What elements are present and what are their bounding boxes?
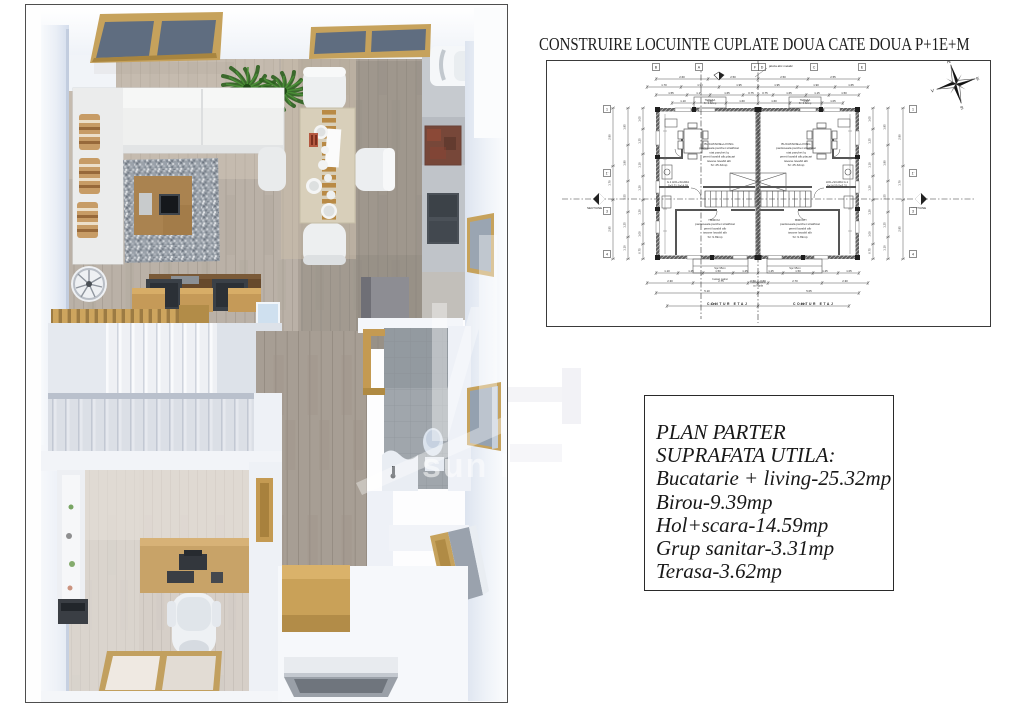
svg-text:2.30: 2.30 <box>842 279 848 283</box>
svg-text:3: 3 <box>912 209 914 213</box>
svg-text:1.80: 1.80 <box>883 160 887 166</box>
svg-text:1.15: 1.15 <box>814 91 820 95</box>
svg-text:jaluza abc metalic: jaluza abc metalic <box>768 64 793 68</box>
svg-text:1.70: 1.70 <box>608 180 612 186</box>
svg-text:1.95: 1.95 <box>736 83 742 87</box>
svg-text:1.05: 1.05 <box>868 116 872 122</box>
svg-text:2.60: 2.60 <box>679 75 685 79</box>
svg-text:1.00: 1.00 <box>868 231 872 237</box>
svg-text:1.50: 1.50 <box>715 269 721 273</box>
svg-text:1.25: 1.25 <box>623 222 627 228</box>
svg-text:1.65: 1.65 <box>848 83 854 87</box>
svg-text:1.55: 1.55 <box>668 91 674 95</box>
svg-text:1.10: 1.10 <box>664 269 670 273</box>
svg-text:1.25: 1.25 <box>768 269 774 273</box>
svg-text:2.50: 2.50 <box>780 75 786 79</box>
svg-text:1.20: 1.20 <box>868 185 872 191</box>
svg-text:1.60: 1.60 <box>803 99 809 103</box>
svg-text:0.50: 0.50 <box>760 279 766 283</box>
svg-text:5.10: 5.10 <box>704 289 710 293</box>
svg-text:0.50: 0.50 <box>750 279 756 283</box>
svg-text:4: 4 <box>912 252 914 256</box>
svg-text:1.25: 1.25 <box>638 138 642 144</box>
svg-text:1.85: 1.85 <box>883 124 887 130</box>
svg-text:1.10: 1.10 <box>883 245 887 251</box>
svg-text:1.25: 1.25 <box>868 138 872 144</box>
svg-text:SECTIUNE 1: SECTIUNE 1 <box>587 206 605 210</box>
svg-text:1.20: 1.20 <box>868 209 872 215</box>
svg-text:1.25: 1.25 <box>822 269 828 273</box>
svg-text:0.75: 0.75 <box>762 91 768 95</box>
svg-text:1.60: 1.60 <box>771 99 777 103</box>
svg-text:1.65: 1.65 <box>724 91 730 95</box>
svg-text:S= 9.39mp: S= 9.39mp <box>707 235 722 239</box>
svg-text:2.50: 2.50 <box>730 75 736 79</box>
svg-text:1.60: 1.60 <box>707 99 713 103</box>
svg-text:1.10: 1.10 <box>623 245 627 251</box>
svg-text:S= 25.32mp: S= 25.32mp <box>711 163 728 167</box>
svg-text:1.20: 1.20 <box>638 185 642 191</box>
svg-text:S= 25.32mp: S= 25.32mp <box>788 163 805 167</box>
svg-text:C: C <box>813 65 816 69</box>
svg-text:1.50: 1.50 <box>841 91 847 95</box>
svg-text:1': 1' <box>606 171 609 175</box>
svg-text:1': 1' <box>912 171 915 175</box>
svg-text:1.85: 1.85 <box>623 124 627 130</box>
svg-text:1.10: 1.10 <box>638 162 642 168</box>
svg-text:2.95: 2.95 <box>898 226 902 232</box>
svg-text:4: 4 <box>606 252 608 256</box>
svg-text:3: 3 <box>606 209 608 213</box>
svg-text:S= 9.39mp: S= 9.39mp <box>792 235 807 239</box>
svg-text:0.75: 0.75 <box>638 248 642 254</box>
svg-text:sun Im: sun Im <box>422 447 507 485</box>
svg-text:S=14.59 S=3.31: S=14.59 S=3.31 <box>827 184 848 188</box>
svg-text:1.10: 1.10 <box>868 162 872 168</box>
svg-text:S=3.31 S=14.59: S=3.31 S=14.59 <box>668 184 689 188</box>
svg-text:5.05: 5.05 <box>806 289 812 293</box>
svg-text:1.90: 1.90 <box>697 83 703 87</box>
svg-text:1.90: 1.90 <box>813 83 819 87</box>
svg-text:1: 1 <box>912 107 914 111</box>
svg-text:1.65: 1.65 <box>786 91 792 95</box>
svg-text:2.90: 2.90 <box>898 134 902 140</box>
svg-text:1.25: 1.25 <box>883 222 887 228</box>
svg-text:1.60: 1.60 <box>739 99 745 103</box>
svg-text:CONTUR ETAJ: CONTUR ETAJ <box>793 302 834 306</box>
svg-text:1.25: 1.25 <box>688 269 694 273</box>
svg-text:D: D <box>761 65 764 69</box>
svg-text:2.90: 2.90 <box>608 134 612 140</box>
svg-text:1.00: 1.00 <box>638 231 642 237</box>
svg-text:2.55: 2.55 <box>830 75 836 79</box>
svg-text:CONTUR ETAJ: CONTUR ETAJ <box>707 302 748 306</box>
svg-text:1.80: 1.80 <box>623 160 627 166</box>
svg-text:2.70: 2.70 <box>792 279 798 283</box>
svg-text:1.20: 1.20 <box>638 209 642 215</box>
svg-text:1.50: 1.50 <box>795 269 801 273</box>
svg-text:1.95: 1.95 <box>774 83 780 87</box>
svg-text:1.05: 1.05 <box>846 269 852 273</box>
svg-text:2.75: 2.75 <box>718 279 724 283</box>
svg-text:1.25: 1.25 <box>742 269 748 273</box>
svg-text:1: 1 <box>606 107 608 111</box>
svg-text:2.30: 2.30 <box>667 279 673 283</box>
svg-text:1.70: 1.70 <box>898 180 902 186</box>
svg-text:0.75: 0.75 <box>868 248 872 254</box>
svg-text:0.75: 0.75 <box>748 91 754 95</box>
svg-text:1.05: 1.05 <box>638 116 642 122</box>
svg-text:2.95: 2.95 <box>608 226 612 232</box>
svg-text:1.70: 1.70 <box>661 83 667 87</box>
svg-text:1.10: 1.10 <box>680 99 686 103</box>
svg-text:1.05: 1.05 <box>830 99 836 103</box>
